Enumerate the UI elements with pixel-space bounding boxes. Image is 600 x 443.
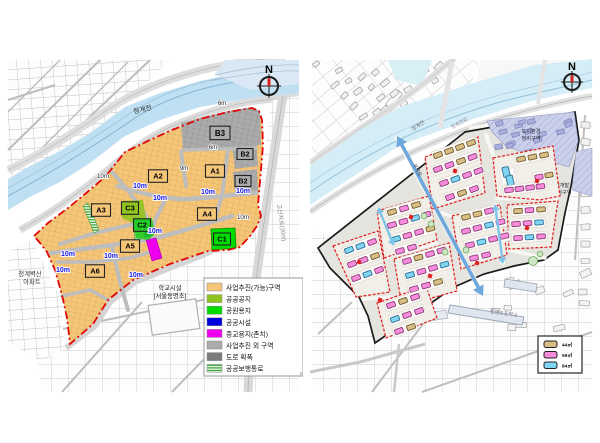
svg-text:도로 확폭: 도로 확폭: [226, 353, 253, 362]
svg-text:아파트: 아파트: [23, 277, 41, 286]
svg-text:44㎡: 44㎡: [562, 342, 572, 349]
svg-text:N: N: [568, 61, 576, 73]
svg-text:A4: A4: [202, 210, 212, 219]
svg-text:공원용지: 공원용지: [226, 306, 251, 315]
svg-text:10m: 10m: [236, 188, 250, 195]
svg-text:6m: 6m: [218, 100, 227, 107]
svg-text:10m: 10m: [129, 272, 143, 279]
svg-text:정비구역: 정비구역: [521, 134, 540, 142]
svg-text:공공공지: 공공공지: [226, 295, 251, 304]
svg-text:C1: C1: [217, 235, 227, 244]
svg-text:청계벽산: 청계벽산: [18, 269, 41, 278]
svg-text:C3: C3: [125, 204, 135, 213]
svg-text:공공보행통로: 공공보행통로: [226, 364, 264, 373]
svg-text:N: N: [265, 64, 273, 76]
svg-text:A1: A1: [210, 167, 220, 176]
svg-text:C2: C2: [137, 221, 147, 230]
svg-text:84㎡: 84㎡: [562, 363, 572, 370]
svg-text:B2: B2: [239, 179, 248, 186]
svg-text:10m: 10m: [61, 251, 75, 258]
svg-text:사업추진(가능)구역: 사업추진(가능)구역: [226, 283, 281, 292]
svg-text:10m: 10m: [237, 214, 249, 221]
svg-text:10m: 10m: [97, 173, 109, 180]
svg-text:B2: B2: [241, 152, 250, 159]
svg-text:10m: 10m: [148, 228, 162, 235]
svg-text:10m: 10m: [56, 267, 70, 274]
svg-text:10m: 10m: [201, 189, 215, 196]
svg-text:[서울동명초]: [서울동명초]: [154, 291, 187, 300]
svg-text:59㎡: 59㎡: [562, 352, 572, 359]
svg-text:도시환경: 도시환경: [521, 127, 540, 135]
svg-text:10m: 10m: [104, 253, 118, 260]
svg-text:공공시설: 공공시설: [226, 319, 251, 327]
svg-text:A2: A2: [153, 172, 163, 181]
svg-text:6m: 6m: [209, 144, 218, 151]
svg-text:A3: A3: [96, 206, 106, 215]
svg-text:10m: 10m: [153, 195, 167, 202]
svg-text:A5: A5: [125, 242, 135, 251]
svg-text:사업추진 외 구역: 사업추진 외 구역: [226, 341, 274, 350]
svg-text:학교시설: 학교시설: [158, 283, 181, 292]
svg-text:종교용지(존치): 종교용지(존치): [226, 329, 268, 338]
svg-text:9m: 9m: [180, 165, 189, 172]
svg-text:A6: A6: [90, 267, 100, 276]
svg-text:B3: B3: [215, 129, 226, 138]
svg-text:10m: 10m: [133, 183, 147, 190]
